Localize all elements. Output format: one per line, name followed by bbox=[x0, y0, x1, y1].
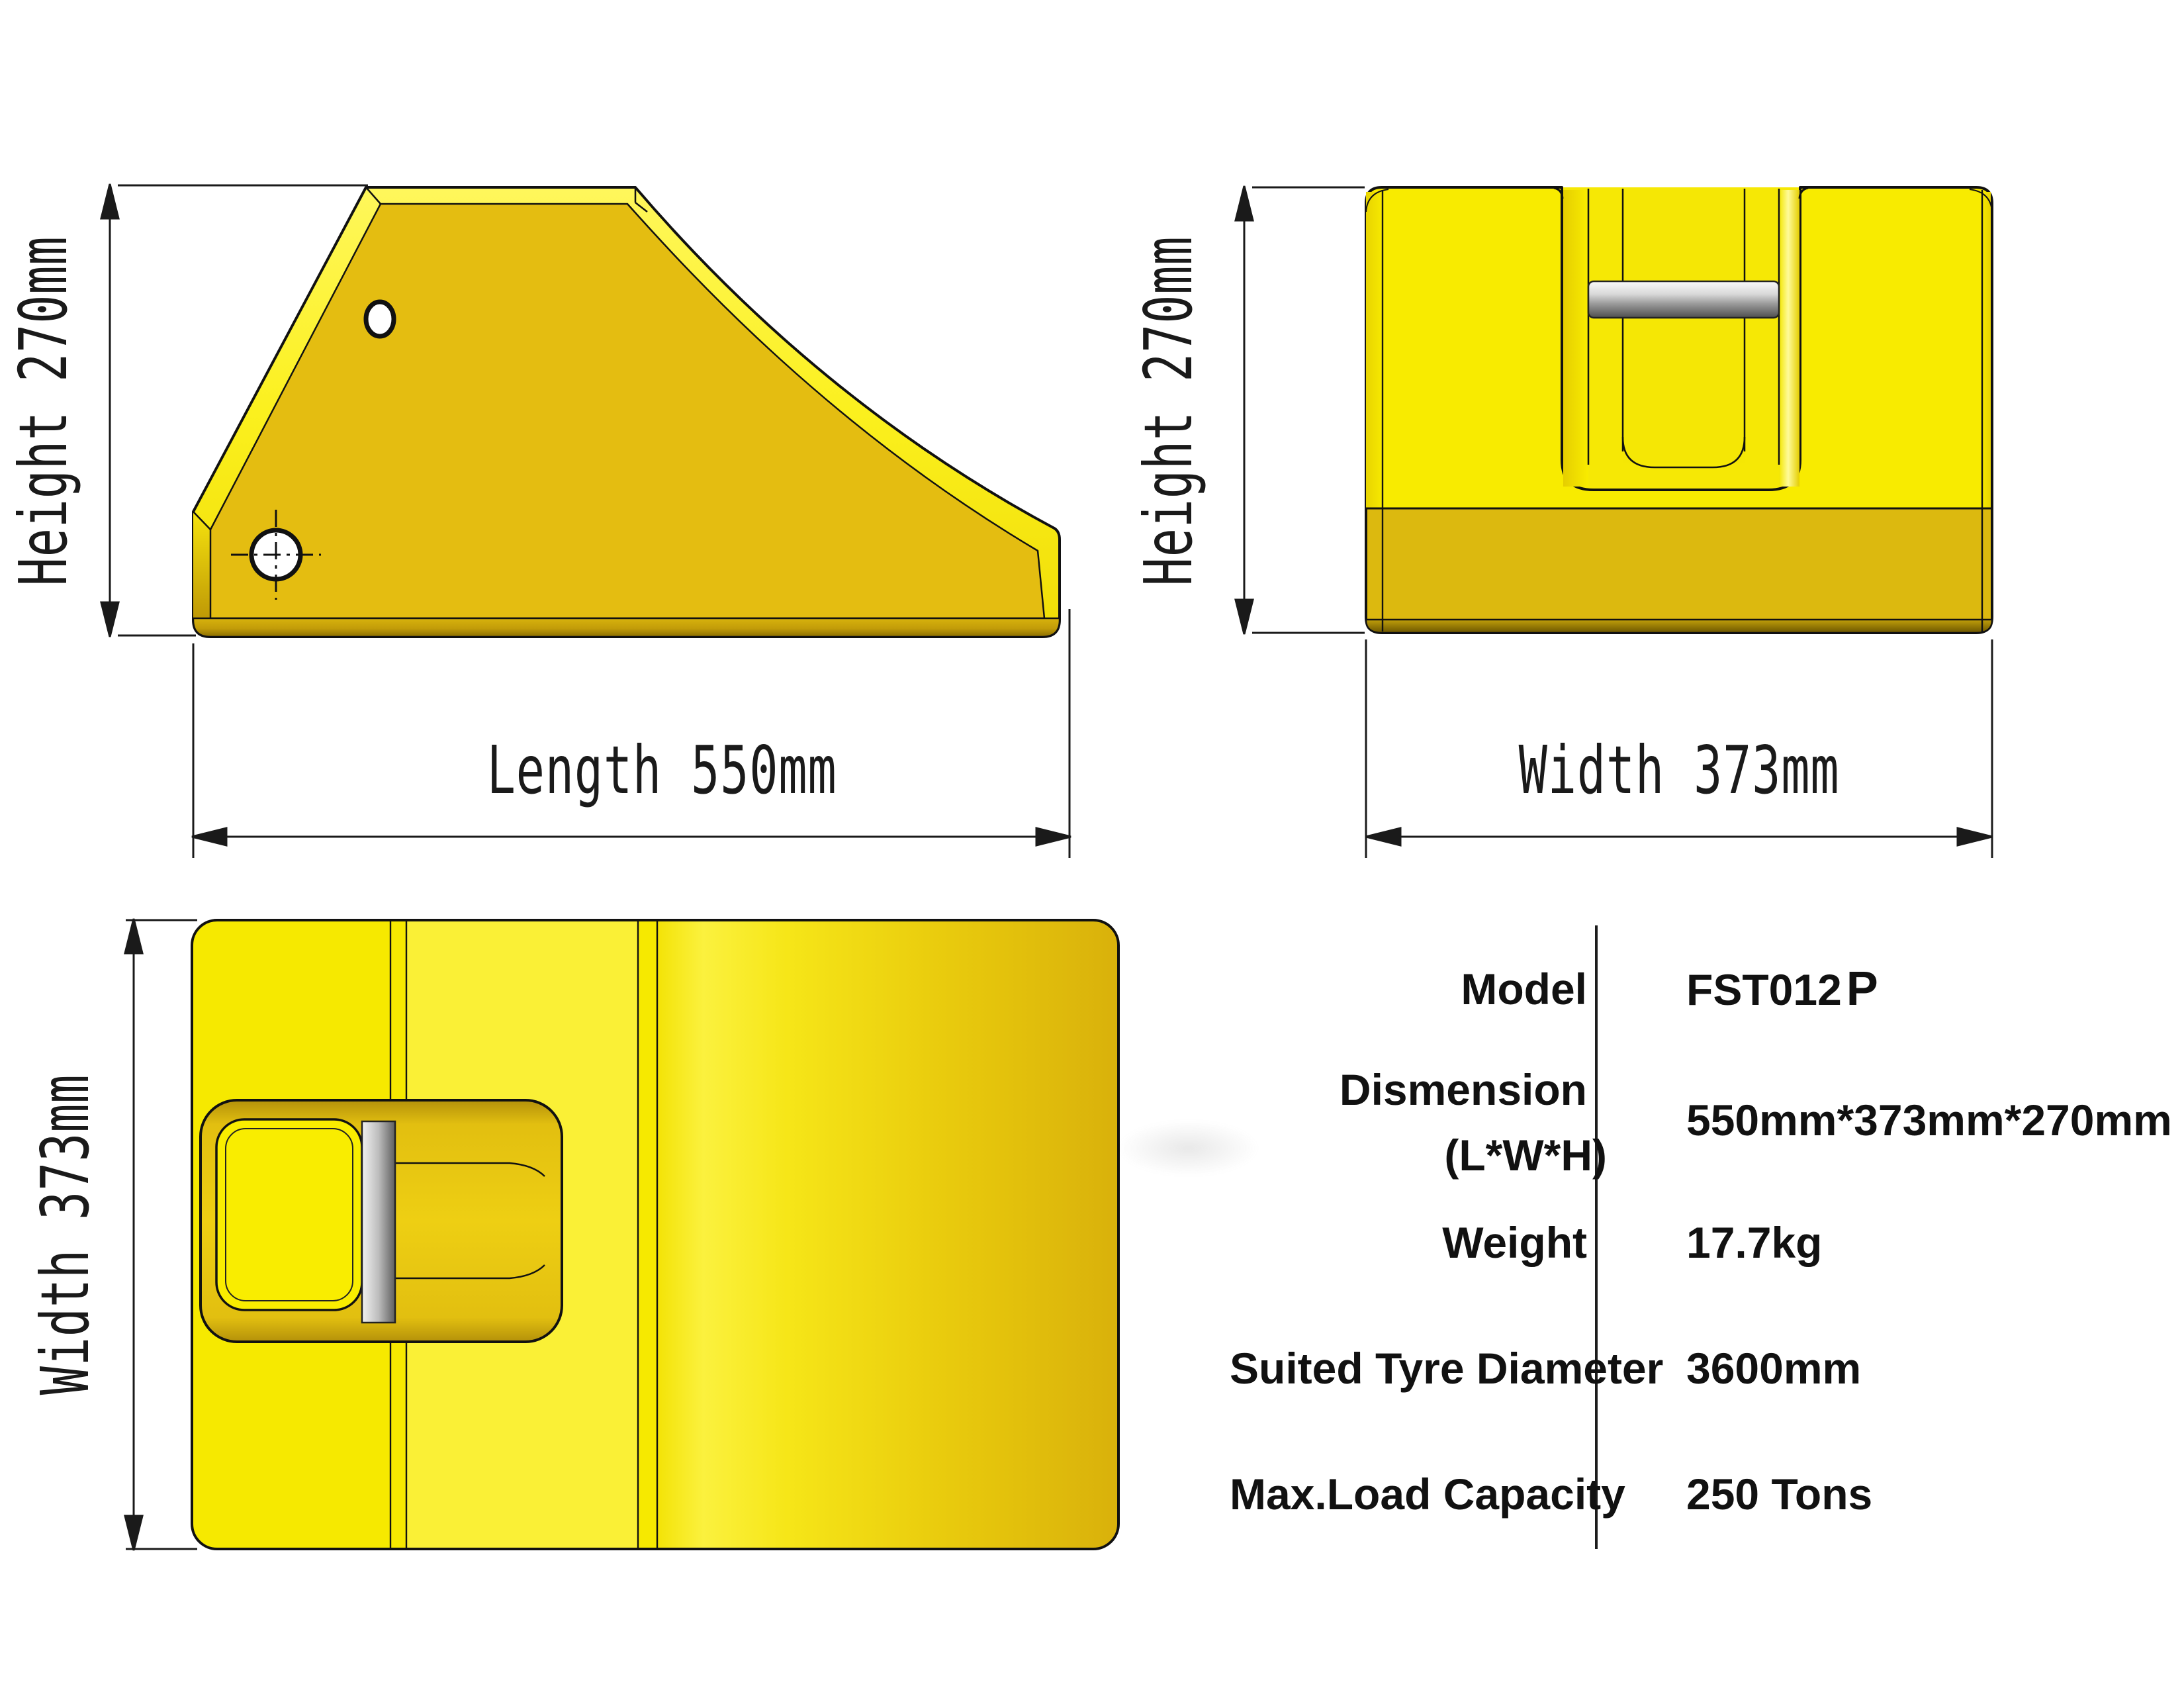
spec-table: Model Dismension (L*W*H) Weight Suited T… bbox=[0, 0, 2184, 1688]
spec-label-model: Model bbox=[1230, 964, 1587, 1014]
spec-label-load-capacity: Max.Load Capacity bbox=[1230, 1469, 1587, 1519]
spec-value-weight: 17.7kg bbox=[1686, 1217, 1822, 1268]
watermark-remnant bbox=[1117, 1120, 1259, 1176]
spec-label-weight: Weight bbox=[1230, 1217, 1587, 1268]
spec-value-model-main: FST012 bbox=[1686, 965, 1842, 1014]
spec-value-model: FST012P bbox=[1686, 962, 1878, 1016]
spec-label-dimension-sub: (L*W*H) bbox=[1250, 1130, 1607, 1180]
spec-label-tyre-diameter: Suited Tyre Diameter bbox=[1230, 1343, 1587, 1393]
spec-table-divider bbox=[1595, 925, 1598, 1549]
spec-value-dimension: 550mm*373mm*270mm bbox=[1686, 1095, 2172, 1145]
spec-label-dimension: Dismension bbox=[1230, 1064, 1587, 1115]
spec-value-model-suffix: P bbox=[1846, 962, 1878, 1015]
spec-value-load-capacity: 250 Tons bbox=[1686, 1469, 1872, 1519]
spec-value-tyre-diameter: 3600mm bbox=[1686, 1343, 1861, 1393]
